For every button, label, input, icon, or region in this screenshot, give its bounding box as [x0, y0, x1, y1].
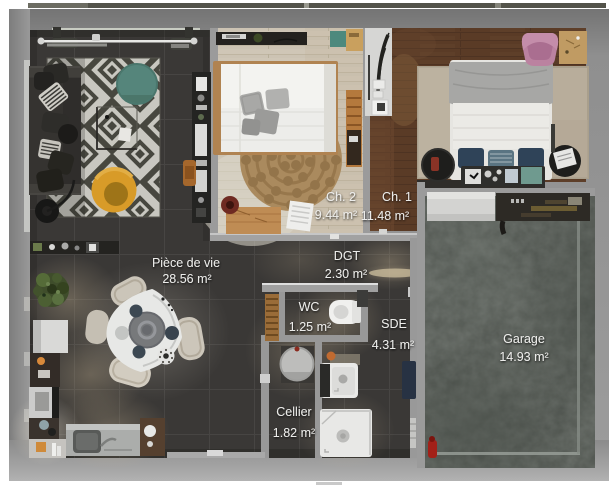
svg-text:11.48 m²: 11.48 m² [361, 209, 409, 223]
svg-text:SDE: SDE [381, 317, 407, 331]
svg-text:WC: WC [299, 300, 320, 314]
svg-text:9.44 m²: 9.44 m² [315, 208, 357, 222]
svg-text:DGT: DGT [334, 249, 361, 263]
svg-text:Ch. 1: Ch. 1 [382, 190, 412, 204]
svg-text:14.93 m²: 14.93 m² [499, 350, 548, 364]
svg-text:2.30 m²: 2.30 m² [325, 267, 367, 281]
svg-text:Cellier: Cellier [276, 405, 311, 419]
svg-text:4.31 m²: 4.31 m² [372, 338, 414, 352]
svg-text:Garage: Garage [503, 332, 545, 346]
svg-text:Ch. 2: Ch. 2 [326, 190, 356, 204]
svg-text:28.56 m²: 28.56 m² [162, 272, 211, 286]
svg-text:1.25 m²: 1.25 m² [289, 320, 331, 334]
svg-text:Pièce de vie: Pièce de vie [152, 256, 220, 270]
svg-text:1.82 m²: 1.82 m² [273, 426, 315, 440]
